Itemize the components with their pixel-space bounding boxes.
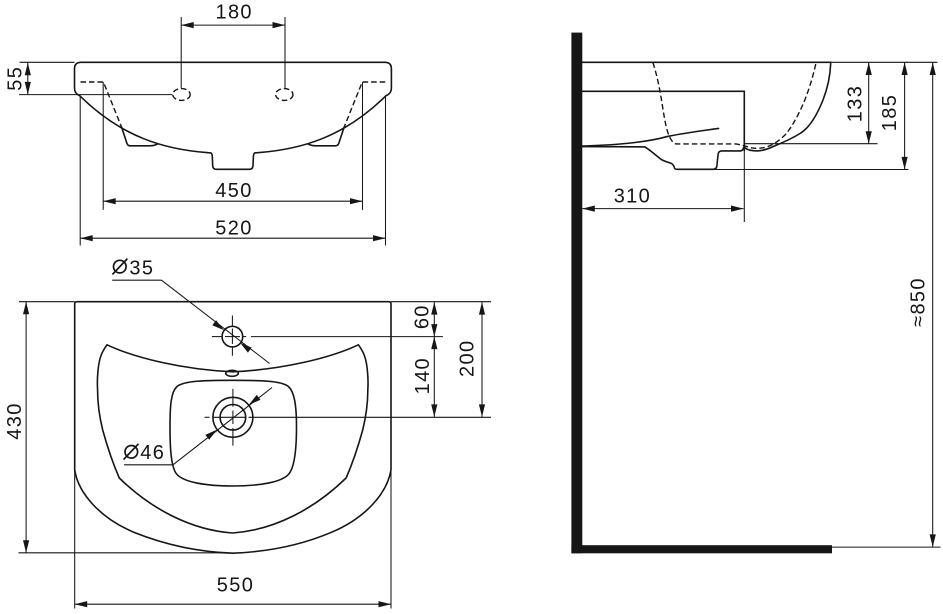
svg-text:550: 550 [217,575,254,597]
svg-text:310: 310 [614,186,651,208]
svg-text:200: 200 [456,340,478,377]
svg-text:55: 55 [5,66,27,91]
svg-text:450: 450 [215,180,252,202]
svg-text:60: 60 [412,304,434,329]
svg-text:140: 140 [412,357,434,394]
svg-text:≈850: ≈850 [908,277,930,327]
svg-text:520: 520 [215,217,252,239]
svg-text:430: 430 [4,402,26,439]
svg-text:133: 133 [845,85,867,122]
svg-text:46: 46 [140,442,165,464]
svg-text:185: 185 [879,94,901,131]
svg-text:180: 180 [215,2,252,24]
svg-text:35: 35 [129,257,154,279]
